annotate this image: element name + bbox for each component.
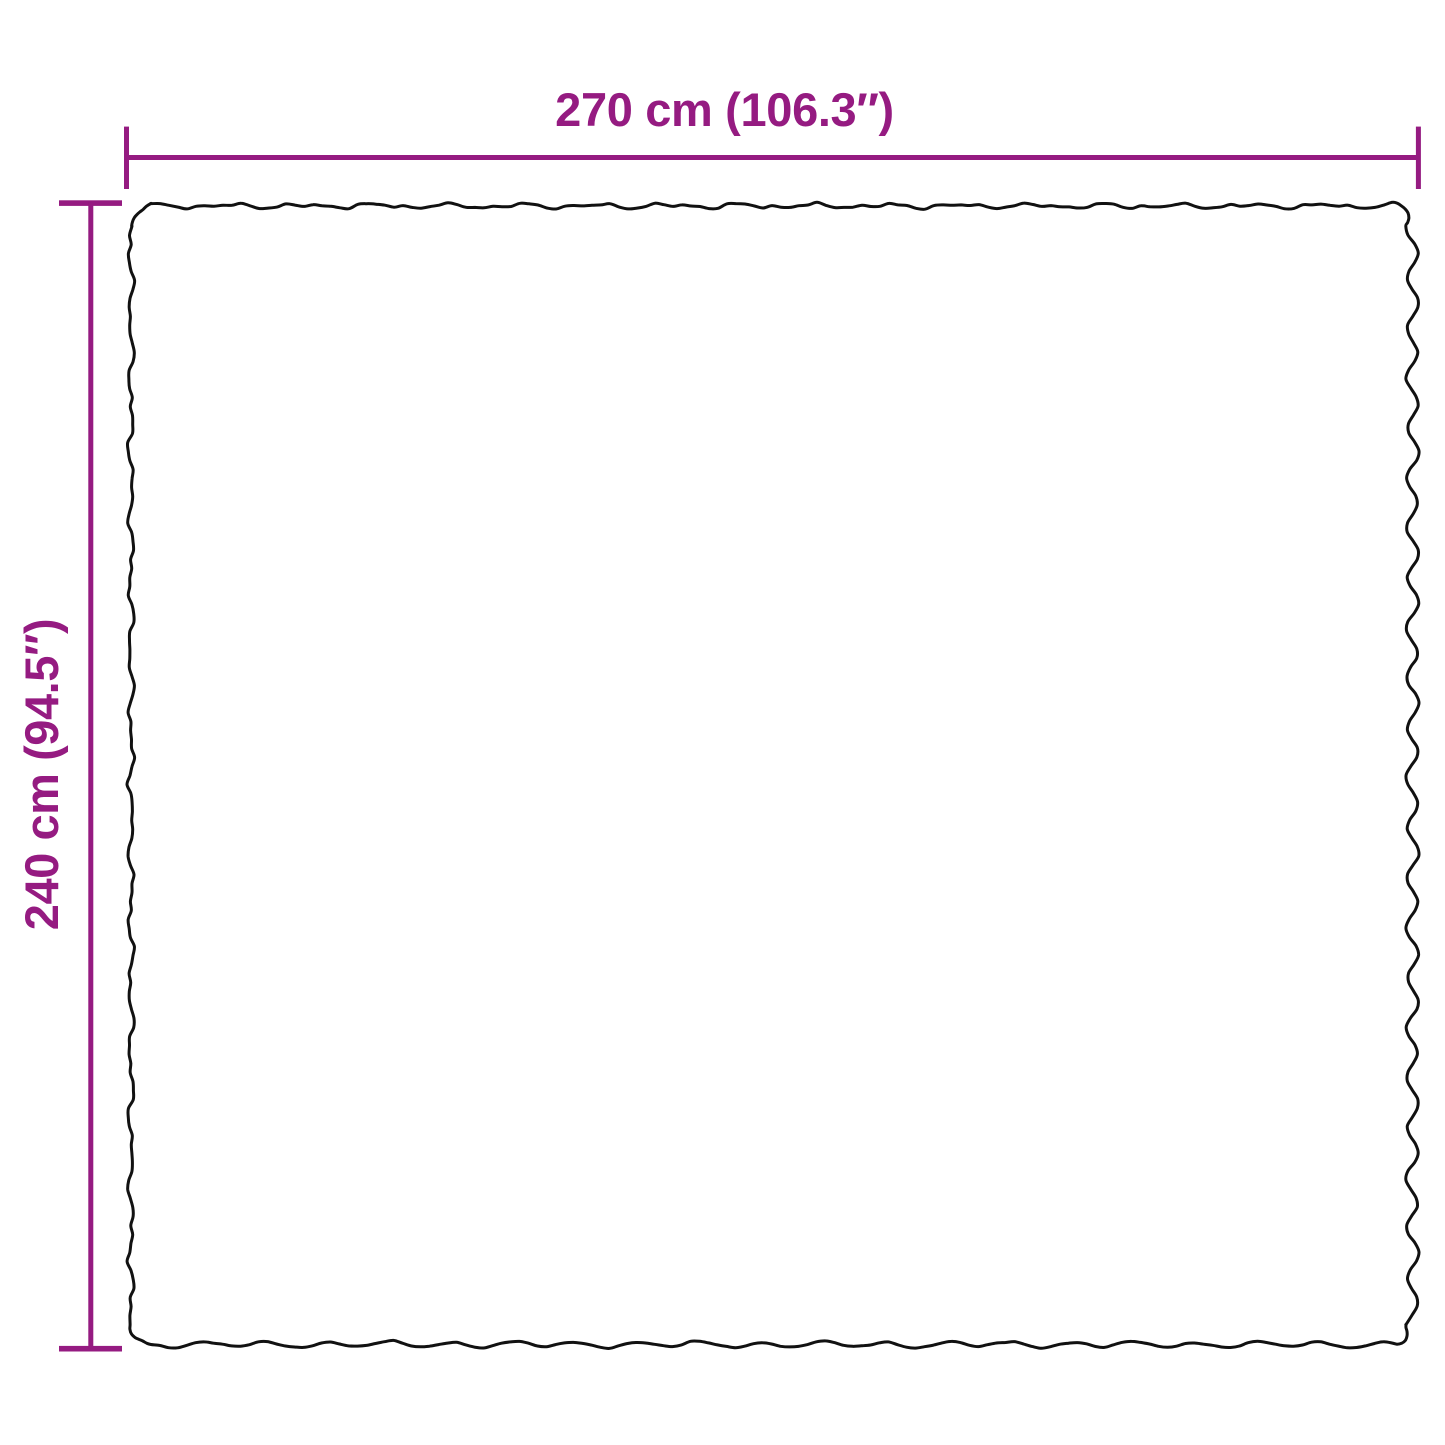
- svg-text:240 cm (94.5″): 240 cm (94.5″): [15, 619, 68, 930]
- svg-text:270 cm (106.3″): 270 cm (106.3″): [555, 83, 894, 136]
